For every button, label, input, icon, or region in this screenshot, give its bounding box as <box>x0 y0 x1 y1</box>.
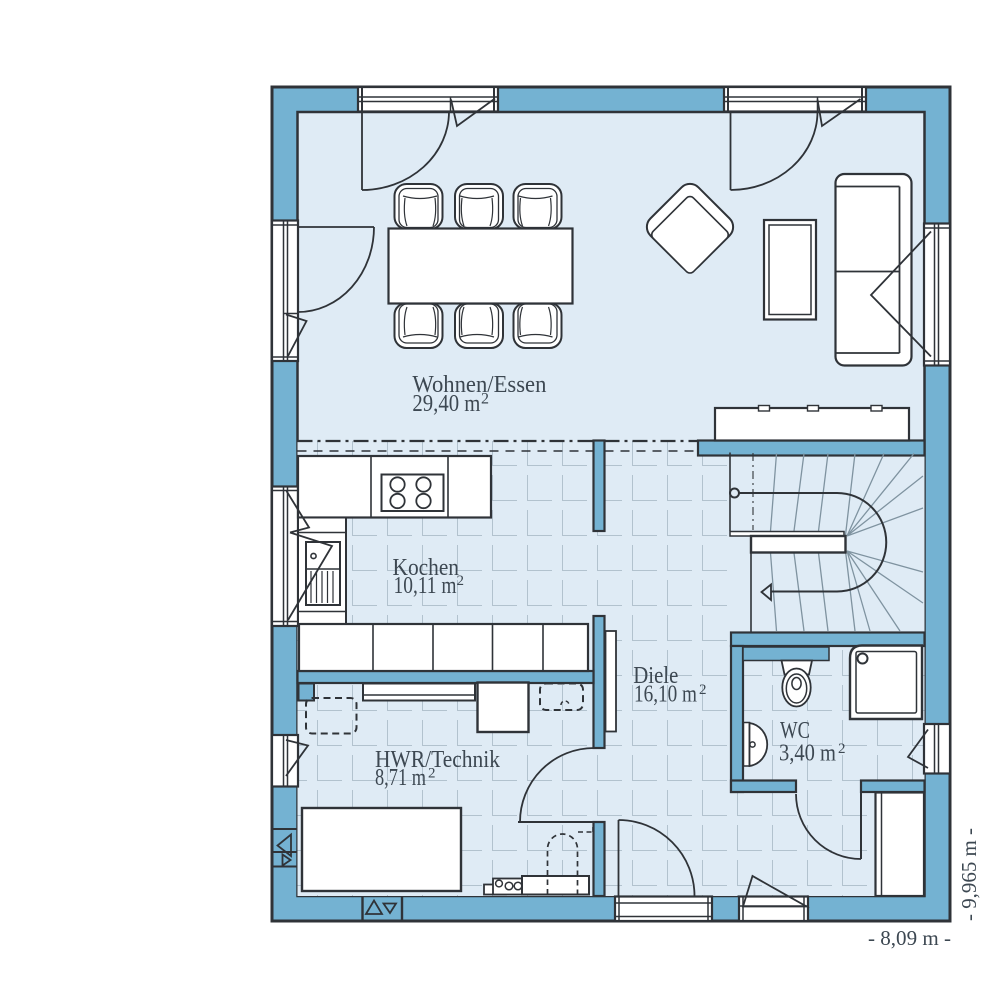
svg-text:10,11 m: 10,11 m <box>394 573 457 599</box>
svg-text:2: 2 <box>481 391 489 408</box>
svg-text:2: 2 <box>428 766 436 782</box>
svg-text:2: 2 <box>457 573 465 589</box>
svg-text:2: 2 <box>699 682 707 698</box>
svg-text:16,10 m: 16,10 m <box>634 682 697 708</box>
svg-text:8,71 m: 8,71 m <box>375 765 426 791</box>
svg-text:- 8,09 m -: - 8,09 m - <box>868 926 951 950</box>
svg-text:2: 2 <box>838 741 846 757</box>
svg-text:- 9,965 m -: - 9,965 m - <box>957 828 981 921</box>
svg-text:29,40 m: 29,40 m <box>412 391 480 417</box>
svg-text:3,40 m: 3,40 m <box>779 741 836 767</box>
